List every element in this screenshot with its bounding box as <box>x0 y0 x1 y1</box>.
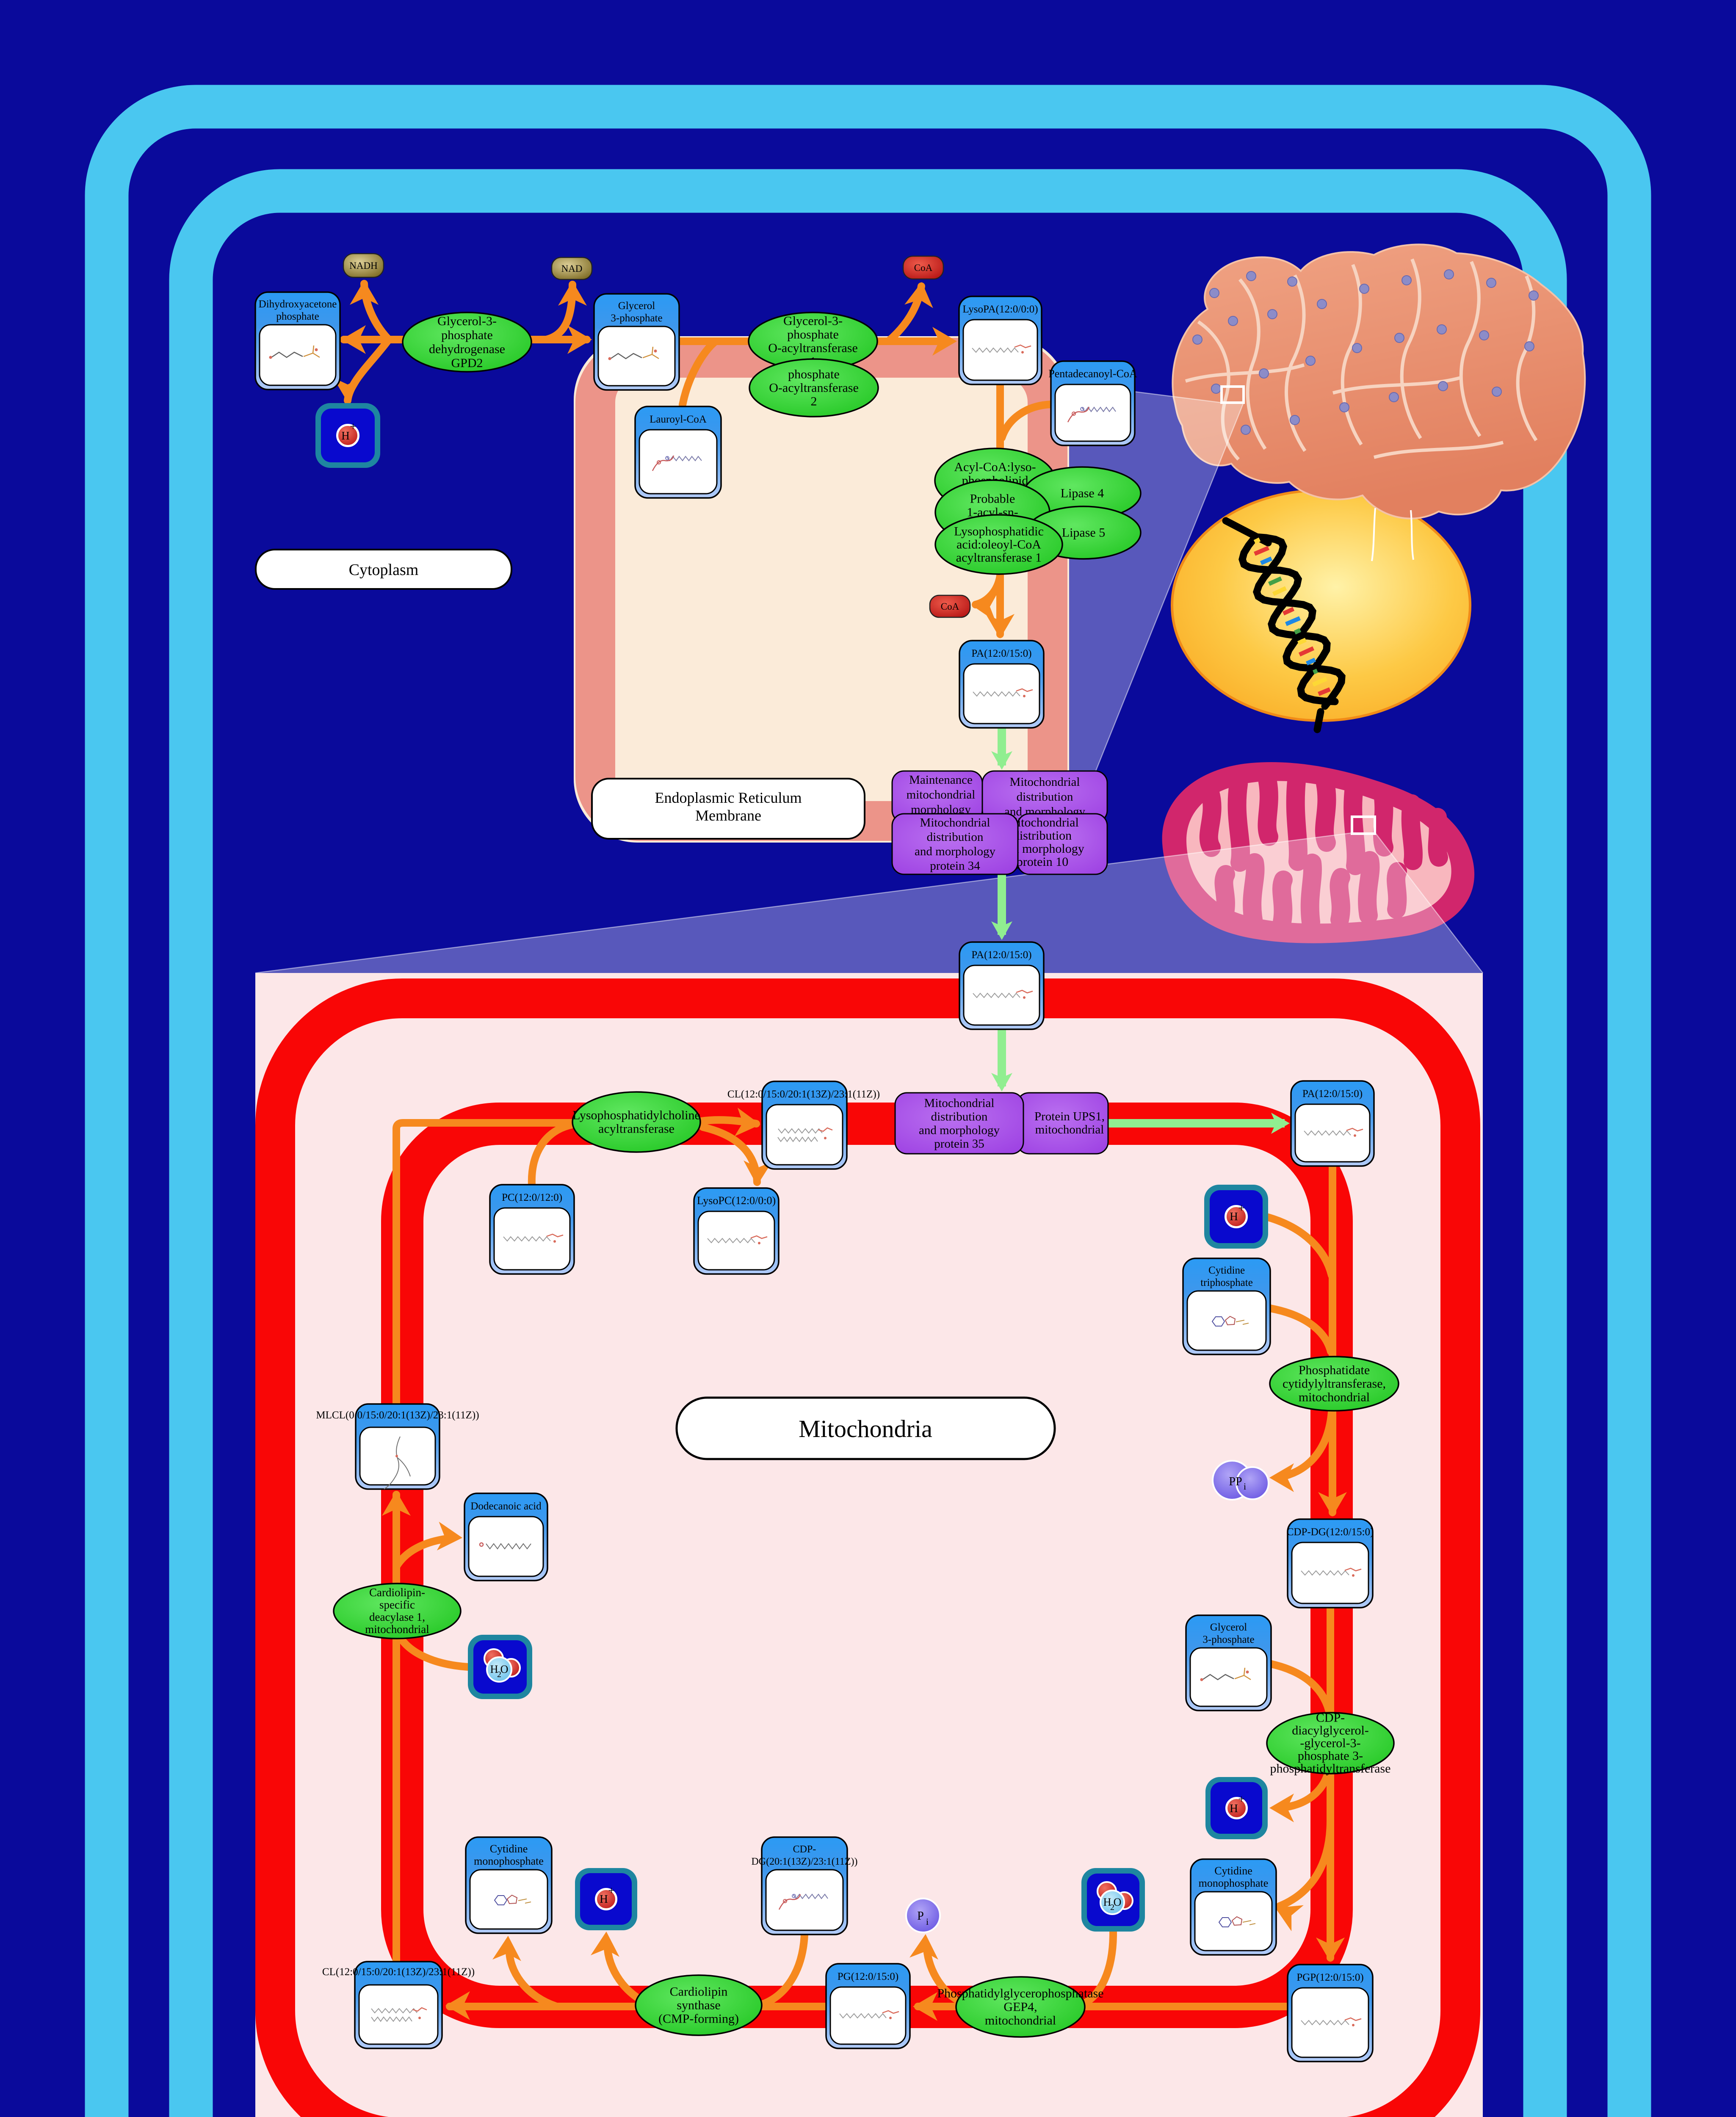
svg-text:Cytoplasm: Cytoplasm <box>349 561 419 579</box>
svg-text:Lauroyl-CoA: Lauroyl-CoA <box>650 414 707 425</box>
svg-text:CDP-DG(12:0/15:0): CDP-DG(12:0/15:0) <box>1287 1526 1374 1538</box>
svg-text:PP: PP <box>1229 1475 1242 1488</box>
svg-text:CoA: CoA <box>941 601 959 612</box>
svg-text:CoA: CoA <box>914 263 933 273</box>
svg-text:Mitochondria: Mitochondria <box>799 1415 932 1443</box>
svg-text:+: + <box>608 1884 614 1897</box>
svg-text:i: i <box>926 1916 929 1927</box>
svg-text:H: H <box>341 429 350 442</box>
svg-text:LysoPA(12:0/0:0): LysoPA(12:0/0:0) <box>962 304 1038 315</box>
svg-text:H: H <box>1230 1802 1238 1815</box>
svg-text:Dodecanoic acid: Dodecanoic acid <box>470 1501 542 1512</box>
svg-text:NAD: NAD <box>561 263 583 274</box>
svg-text:i: i <box>1244 1481 1246 1492</box>
svg-text:O: O <box>1114 1896 1122 1908</box>
svg-text:+: + <box>350 420 356 433</box>
svg-text:+: + <box>1238 1793 1244 1805</box>
svg-text:PGP(12:0/15:0): PGP(12:0/15:0) <box>1296 1972 1363 1983</box>
svg-text:LysoPC(12:0/0:0): LysoPC(12:0/0:0) <box>697 1194 776 1207</box>
svg-text:Maintenancemitochondrialmorpho: Maintenancemitochondrialmorphology <box>907 773 976 816</box>
svg-text:Lysophosphatidicacid:oleoyl-Co: Lysophosphatidicacid:oleoyl-CoAacyltrans… <box>954 525 1044 565</box>
svg-text:H: H <box>600 1893 608 1905</box>
svg-text:P: P <box>917 1910 924 1923</box>
svg-text:CL(12:0/15:0/20:1(13Z)/23:1(11: CL(12:0/15:0/20:1(13Z)/23:1(11Z)) <box>727 1089 880 1100</box>
svg-text:Lipase 5: Lipase 5 <box>1062 526 1105 540</box>
svg-text:Pentadecanoyl-CoA: Pentadecanoyl-CoA <box>1048 368 1137 380</box>
svg-text:MLCL(0:0/15:0/20:1(13Z)/23:1(1: MLCL(0:0/15:0/20:1(13Z)/23:1(11Z)) <box>316 1409 479 1421</box>
svg-text:CL(12:0/15:0/20:1(13Z)/23:1(11: CL(12:0/15:0/20:1(13Z)/23:1(11Z)) <box>322 1966 475 1978</box>
svg-text:Cardiolipin-specificdeacylase: Cardiolipin-specificdeacylase 1,mitochon… <box>365 1586 429 1636</box>
svg-text:O: O <box>500 1663 509 1675</box>
svg-text:Protein UPS1,mitochondrial: Protein UPS1,mitochondrial <box>1034 1110 1105 1136</box>
svg-text:H: H <box>1230 1210 1238 1223</box>
svg-text:Lipase 4: Lipase 4 <box>1061 486 1104 500</box>
svg-text:PA(12:0/15:0): PA(12:0/15:0) <box>1302 1088 1363 1100</box>
svg-text:NADH: NADH <box>349 260 377 271</box>
svg-text:PA(12:0/15:0): PA(12:0/15:0) <box>971 648 1031 659</box>
svg-text:+: + <box>1238 1202 1244 1214</box>
svg-text:PA(12:0/15:0): PA(12:0/15:0) <box>971 949 1031 961</box>
svg-text:PG(12:0/15:0): PG(12:0/15:0) <box>838 1971 898 1982</box>
svg-text:PC(12:0/12:0): PC(12:0/12:0) <box>502 1192 562 1203</box>
